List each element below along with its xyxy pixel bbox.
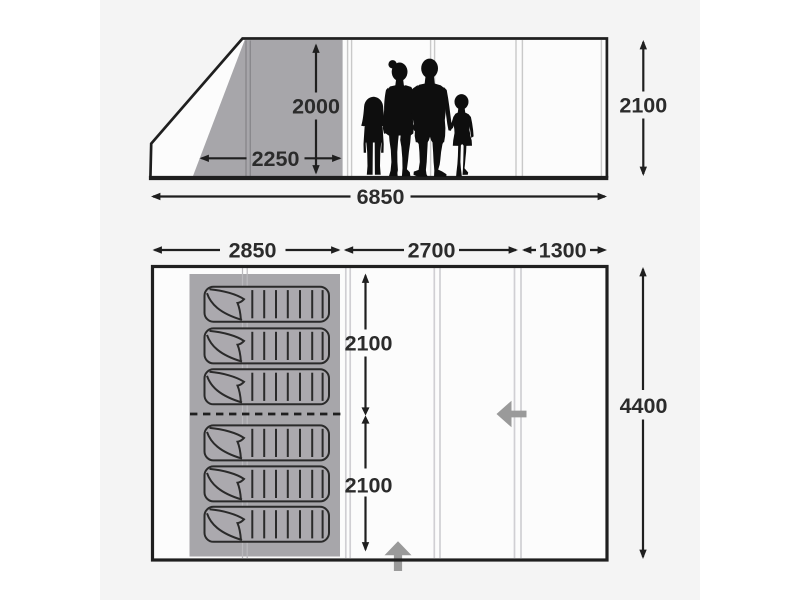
- svg-text:2700: 2700: [408, 238, 456, 262]
- svg-text:2000: 2000: [292, 95, 340, 119]
- svg-text:2100: 2100: [345, 474, 393, 498]
- svg-text:2850: 2850: [229, 238, 277, 262]
- svg-text:2100: 2100: [345, 332, 393, 356]
- svg-text:2100: 2100: [619, 94, 667, 118]
- svg-text:2250: 2250: [252, 147, 300, 171]
- svg-text:4400: 4400: [620, 394, 668, 418]
- svg-text:1300: 1300: [539, 238, 587, 262]
- svg-text:6850: 6850: [357, 185, 405, 209]
